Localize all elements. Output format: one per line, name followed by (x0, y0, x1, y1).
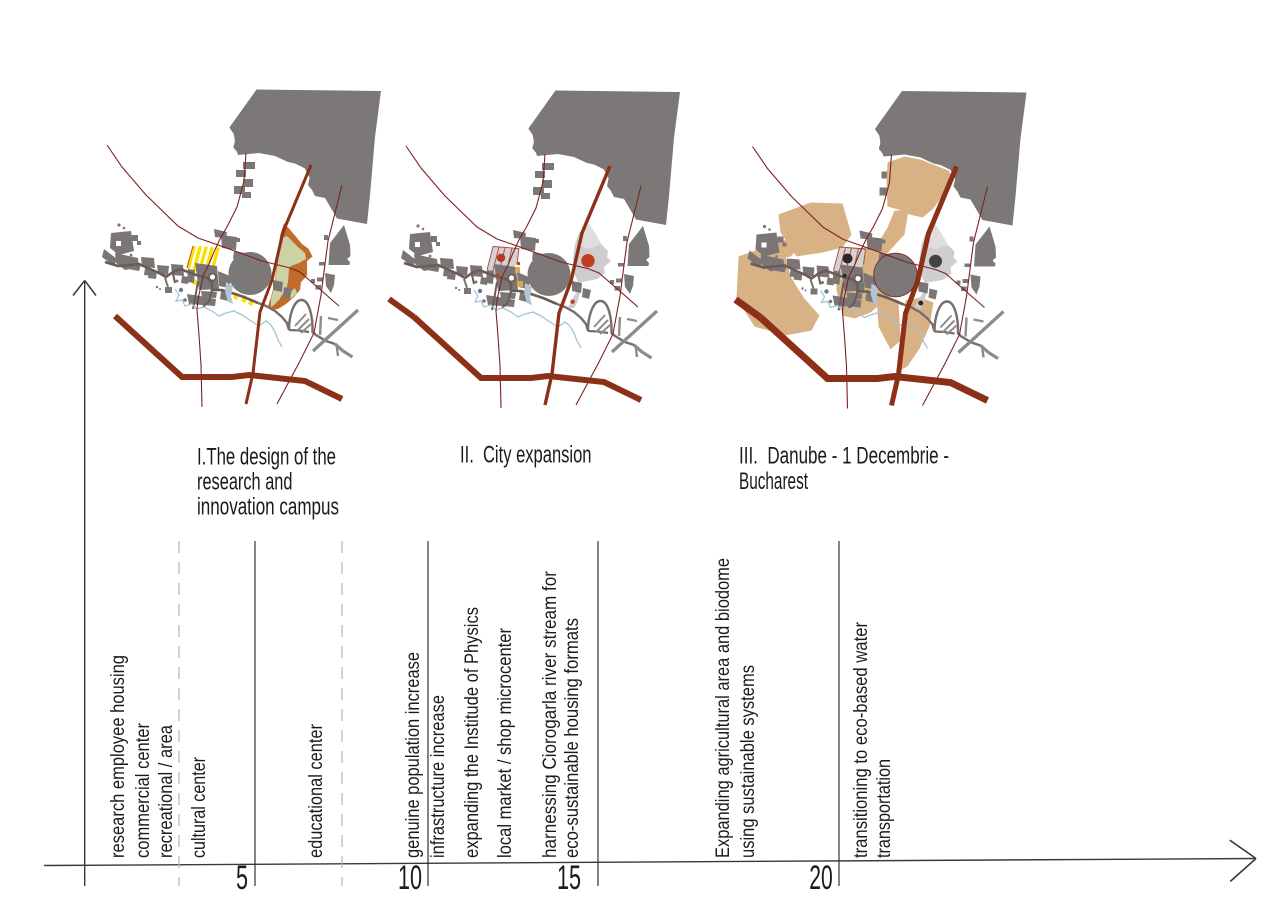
svg-text:educational center: educational center (306, 723, 327, 858)
svg-text:cultural center: cultural center (189, 756, 210, 858)
svg-text:expanding the Institude of Phy: expanding the Institude of Physics (462, 607, 483, 858)
svg-text:infrastructure increase: infrastructure increase (428, 695, 449, 858)
svg-text:research employee housing: research employee housing (108, 655, 129, 858)
svg-text:Bucharest: Bucharest (739, 468, 808, 495)
svg-text:genuine population increase: genuine population increase (403, 652, 424, 858)
svg-text:research and: research and (197, 468, 293, 495)
svg-text:local market / shop microcente: local market / shop microcenter (495, 627, 516, 858)
svg-text:transitioning to eco-based wat: transitioning to eco-based water (851, 621, 872, 858)
svg-text:innovation campus: innovation campus (197, 493, 339, 520)
svg-text:harnessing Ciorogarla river st: harnessing Ciorogarla river stream for (540, 570, 561, 858)
svg-text:20: 20 (809, 859, 833, 897)
svg-text:10: 10 (398, 859, 422, 897)
svg-text:transportation: transportation (874, 759, 895, 858)
svg-text:commercial center: commercial center (133, 722, 154, 858)
svg-text:I.The design of the: I.The design of the (197, 444, 336, 471)
svg-text:eco-sustainable housing format: eco-sustainable housing formats (562, 618, 583, 858)
svg-text:II. City expansion: II. City expansion (460, 442, 592, 469)
svg-text:15: 15 (557, 859, 581, 897)
svg-text:Expanding agricultural area an: Expanding agricultural area and biodome (713, 558, 734, 858)
svg-text:recreational / area: recreational / area (156, 725, 177, 858)
svg-text:III. Danube - 1 Decembrie -: III. Danube - 1 Decembrie - (739, 443, 949, 470)
svg-text:5: 5 (236, 859, 248, 897)
svg-text:using sustainable systems: using sustainable systems (738, 665, 759, 858)
